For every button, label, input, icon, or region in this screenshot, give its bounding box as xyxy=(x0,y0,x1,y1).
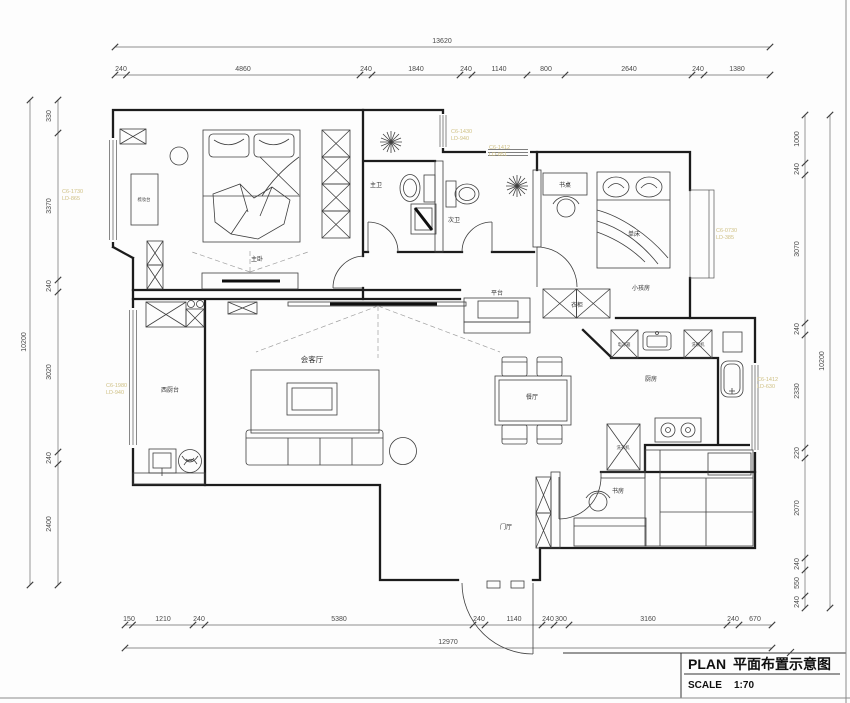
dining-chair xyxy=(502,425,527,444)
dim-right-seg-7: 240 xyxy=(794,558,801,570)
door-second-bath xyxy=(462,222,492,252)
bed-kids xyxy=(597,172,670,268)
label-entry: 门厅 xyxy=(500,523,512,531)
kitchen-sink xyxy=(643,332,671,351)
dim-right-seg-0: 1000 xyxy=(794,131,801,147)
label-fridge: 电冰箱 xyxy=(618,341,632,348)
chair-study xyxy=(589,493,607,511)
window-code: C6-1412 xyxy=(489,145,510,151)
dim-top-seg-7: 2640 xyxy=(621,66,637,73)
door-kids-room xyxy=(537,247,577,287)
dining-chair xyxy=(537,357,562,376)
window-code: LD-630 xyxy=(757,384,775,390)
entry-threshold xyxy=(487,581,500,588)
window-code: C6-0730 xyxy=(716,228,737,234)
dim-top-seg-2: 240 xyxy=(360,66,372,73)
dim-bottom-seg-4: 240 xyxy=(473,616,485,623)
toilet-second xyxy=(446,181,479,207)
bay-window xyxy=(690,190,714,278)
scale-value: 1:70 xyxy=(734,680,754,691)
dim-bottom-seg-9: 240 xyxy=(727,616,739,623)
window-code: LD-865 xyxy=(62,196,80,202)
dim-top-seg-0: 240 xyxy=(115,66,127,73)
dim-left-seg-3: 3020 xyxy=(46,364,53,380)
dim-top-total: 13620 xyxy=(432,38,452,45)
label-study: 书房 xyxy=(612,487,624,495)
dim-right-seg-8: 550 xyxy=(794,577,801,589)
floor-plan-page: 13620 240 4860 240 1840 240 1140 800 264… xyxy=(0,0,850,703)
dim-bottom-seg-7: 300 xyxy=(555,616,567,623)
label-desk: 书桌 xyxy=(559,181,571,189)
dim-left-seg-0: 330 xyxy=(46,110,53,122)
label-bed: 单床 xyxy=(628,230,640,238)
study xyxy=(487,450,753,588)
kids-room xyxy=(543,172,670,318)
pillow xyxy=(209,134,249,157)
dim-bottom-seg-1: 1210 xyxy=(155,616,171,623)
window-code: LD-385 xyxy=(716,235,734,241)
laundry-cabinet xyxy=(146,302,204,327)
dim-bottom-seg-5: 1140 xyxy=(506,616,521,623)
window-code: LD-940 xyxy=(106,390,124,396)
label-kids-room: 小孩房 xyxy=(632,284,650,292)
cabinet-sw xyxy=(147,241,163,289)
dim-bottom-seg-6: 240 xyxy=(542,616,554,623)
title-block: PLAN 平面布置示意图 SCALE 1:70 xyxy=(0,0,850,703)
sofa xyxy=(246,430,383,465)
dim-right-seg-3: 240 xyxy=(794,323,801,335)
label-master-bath: 主卫 xyxy=(370,181,382,189)
label-dining-room: 餐厅 xyxy=(526,393,538,401)
side-table xyxy=(390,438,417,465)
window-code: C6-1412 xyxy=(757,377,778,383)
plan-title: 平面布置示意图 xyxy=(733,656,831,672)
laundry-sink xyxy=(149,449,176,476)
dim-bottom-seg-3: 5380 xyxy=(331,616,347,623)
shoe-cabinet xyxy=(536,477,551,548)
label-washer: 洗衣机 xyxy=(617,444,631,451)
dim-top-seg-1: 4860 xyxy=(235,66,251,73)
living-room xyxy=(228,302,500,465)
counter-corner xyxy=(723,332,742,352)
label-master-bedroom: 主卧 xyxy=(251,255,263,263)
dim-left-total: 10200 xyxy=(21,332,28,352)
chair-kids xyxy=(557,199,575,217)
master-bedroom xyxy=(120,129,350,289)
dim-right-seg-1: 240 xyxy=(794,163,801,175)
dim-bottom-total: 12970 xyxy=(438,639,458,646)
scale-label: SCALE xyxy=(688,680,722,691)
dim-left-seg-1: 3370 xyxy=(46,198,53,214)
dim-right-seg-5: 220 xyxy=(794,447,801,459)
east-basin xyxy=(721,361,743,397)
label-platform: 平台 xyxy=(491,289,503,297)
shower-symbol xyxy=(380,131,402,153)
door-study xyxy=(559,477,601,519)
label-second-bath: 次卫 xyxy=(448,216,460,224)
dining-chair xyxy=(502,357,527,376)
label-wardrobe: 衣柜 xyxy=(571,301,583,309)
window-code: C6-1430 xyxy=(451,129,472,135)
dim-top-seg-8: 240 xyxy=(692,66,704,73)
dim-left-seg-5: 2400 xyxy=(46,516,53,532)
dim-top-seg-5: 1140 xyxy=(491,66,506,73)
dining-chair xyxy=(537,425,562,444)
desk-study xyxy=(574,518,646,546)
label-west-kitchen: 西厨台 xyxy=(161,386,179,394)
window-code: C6-1980 xyxy=(106,383,127,389)
dim-left-seg-2: 240 xyxy=(46,280,53,292)
dim-right-seg-6: 2070 xyxy=(794,500,801,516)
label-kitchen: 厨房 xyxy=(645,375,657,383)
dim-top-seg-9: 1380 xyxy=(729,66,745,73)
bed-master xyxy=(203,130,300,242)
floor-plan-canvas: 13620 240 4860 240 1840 240 1140 800 264… xyxy=(0,0,850,703)
tv-wall-cabinet xyxy=(228,302,257,314)
washing-machine xyxy=(179,450,202,473)
bookshelf xyxy=(645,450,753,546)
dim-top-seg-6: 800 xyxy=(540,66,552,73)
room-labels: 主卧 主卫 次卫 小孩房 会客厅 餐厅 厨房 书房 门厅 西厨台 平台 衣柜 书… xyxy=(138,181,706,531)
dim-right-seg-4: 2330 xyxy=(794,383,801,399)
rug xyxy=(251,370,379,433)
label-living-room: 会客厅 xyxy=(301,354,324,364)
dim-left-seg-4: 240 xyxy=(46,452,53,464)
window-code: C6-1730 xyxy=(62,189,83,195)
dim-top-seg-4: 240 xyxy=(460,66,472,73)
pillow xyxy=(636,177,662,197)
hatched-walls xyxy=(133,161,645,548)
cabinet-top-left xyxy=(120,129,146,144)
dim-bottom-seg-0: 150 xyxy=(123,616,135,623)
dim-right-seg-2: 3070 xyxy=(794,241,801,257)
pillow xyxy=(254,134,294,157)
door-master-bath xyxy=(368,222,398,252)
dim-bottom-seg-2: 240 xyxy=(193,616,205,623)
label-dishwasher: 洗碗机 xyxy=(692,341,706,348)
blanket xyxy=(213,184,290,239)
dim-top-seg-3: 1840 xyxy=(408,66,424,73)
dim-right-seg-9: 240 xyxy=(794,596,801,608)
entry-threshold xyxy=(511,581,524,588)
door-master-bedroom xyxy=(333,256,363,288)
stove xyxy=(655,418,701,442)
stool xyxy=(170,147,188,165)
label-dresser: 梳妆台 xyxy=(138,196,151,203)
window-code: LD-851 xyxy=(489,152,507,158)
dim-right-total: 10200 xyxy=(819,351,826,371)
corridor xyxy=(464,298,530,322)
window-code: LD-940 xyxy=(451,136,469,142)
shower-box xyxy=(411,204,436,234)
toilet-master xyxy=(400,175,435,203)
dim-bottom-seg-10: 670 xyxy=(749,616,761,623)
plan-label: PLAN xyxy=(688,656,726,672)
pillow xyxy=(603,177,629,197)
shower-symbol xyxy=(506,175,528,197)
window-codes: C6-1730 LD-865 C6-1980 LD-940 C6-1430 LD… xyxy=(62,129,778,396)
wardrobe-master xyxy=(322,130,350,238)
dim-bottom-seg-8: 3160 xyxy=(640,616,656,623)
dimension-lines: 13620 240 4860 240 1840 240 1140 800 264… xyxy=(21,38,833,651)
